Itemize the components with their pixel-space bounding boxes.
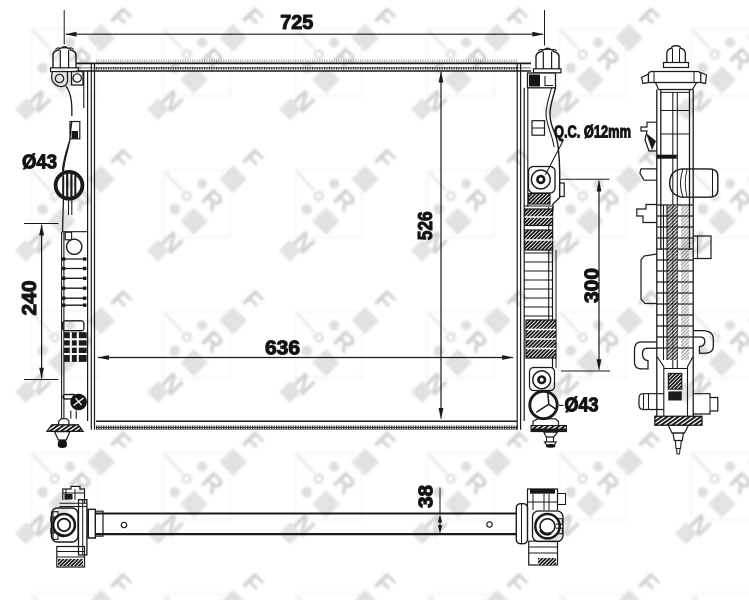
svg-text:Ø43: Ø43 bbox=[565, 394, 599, 416]
svg-text:300: 300 bbox=[581, 268, 603, 303]
svg-text:38: 38 bbox=[415, 485, 437, 508]
svg-text:Q.C. Ø12mm: Q.C. Ø12mm bbox=[554, 122, 631, 142]
svg-text:526: 526 bbox=[415, 211, 437, 240]
svg-text:725: 725 bbox=[280, 12, 313, 34]
svg-text:Ø43: Ø43 bbox=[22, 152, 57, 174]
svg-text:240: 240 bbox=[19, 281, 41, 316]
svg-text:636: 636 bbox=[265, 338, 300, 360]
